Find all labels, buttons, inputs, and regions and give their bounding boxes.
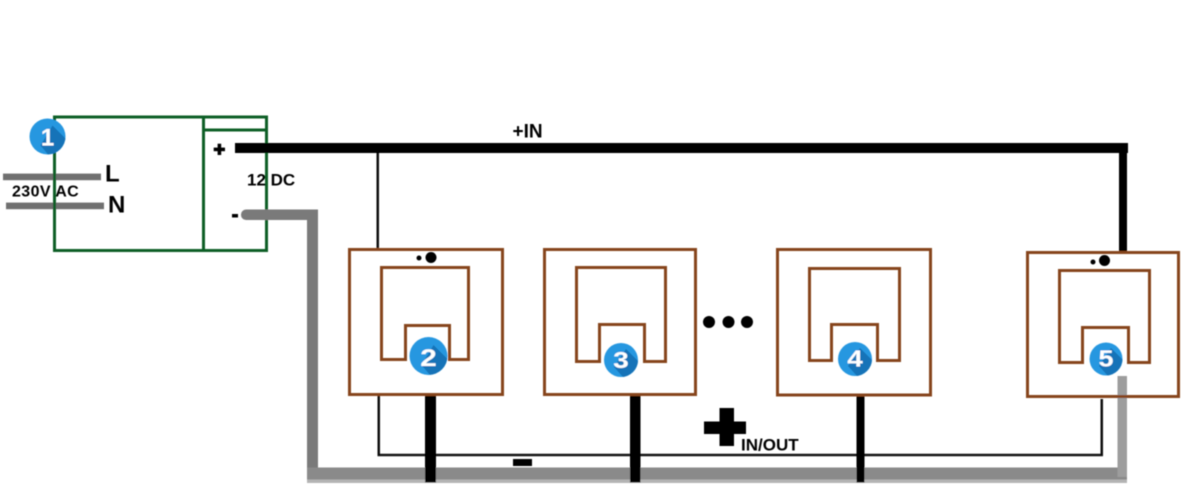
svg-text:3: 3 — [613, 347, 629, 373]
svg-text:12 DC: 12 DC — [247, 171, 295, 190]
svg-text:230V AC: 230V AC — [12, 184, 79, 201]
svg-text:1: 1 — [41, 125, 54, 152]
svg-text:2: 2 — [420, 345, 437, 372]
svg-text:L: L — [105, 161, 120, 188]
svg-text:4: 4 — [847, 346, 863, 372]
svg-text:IN/OUT: IN/OUT — [741, 436, 799, 455]
svg-text:N: N — [108, 192, 125, 219]
svg-text:5: 5 — [1099, 346, 1114, 372]
svg-text:+IN: +IN — [513, 122, 543, 143]
